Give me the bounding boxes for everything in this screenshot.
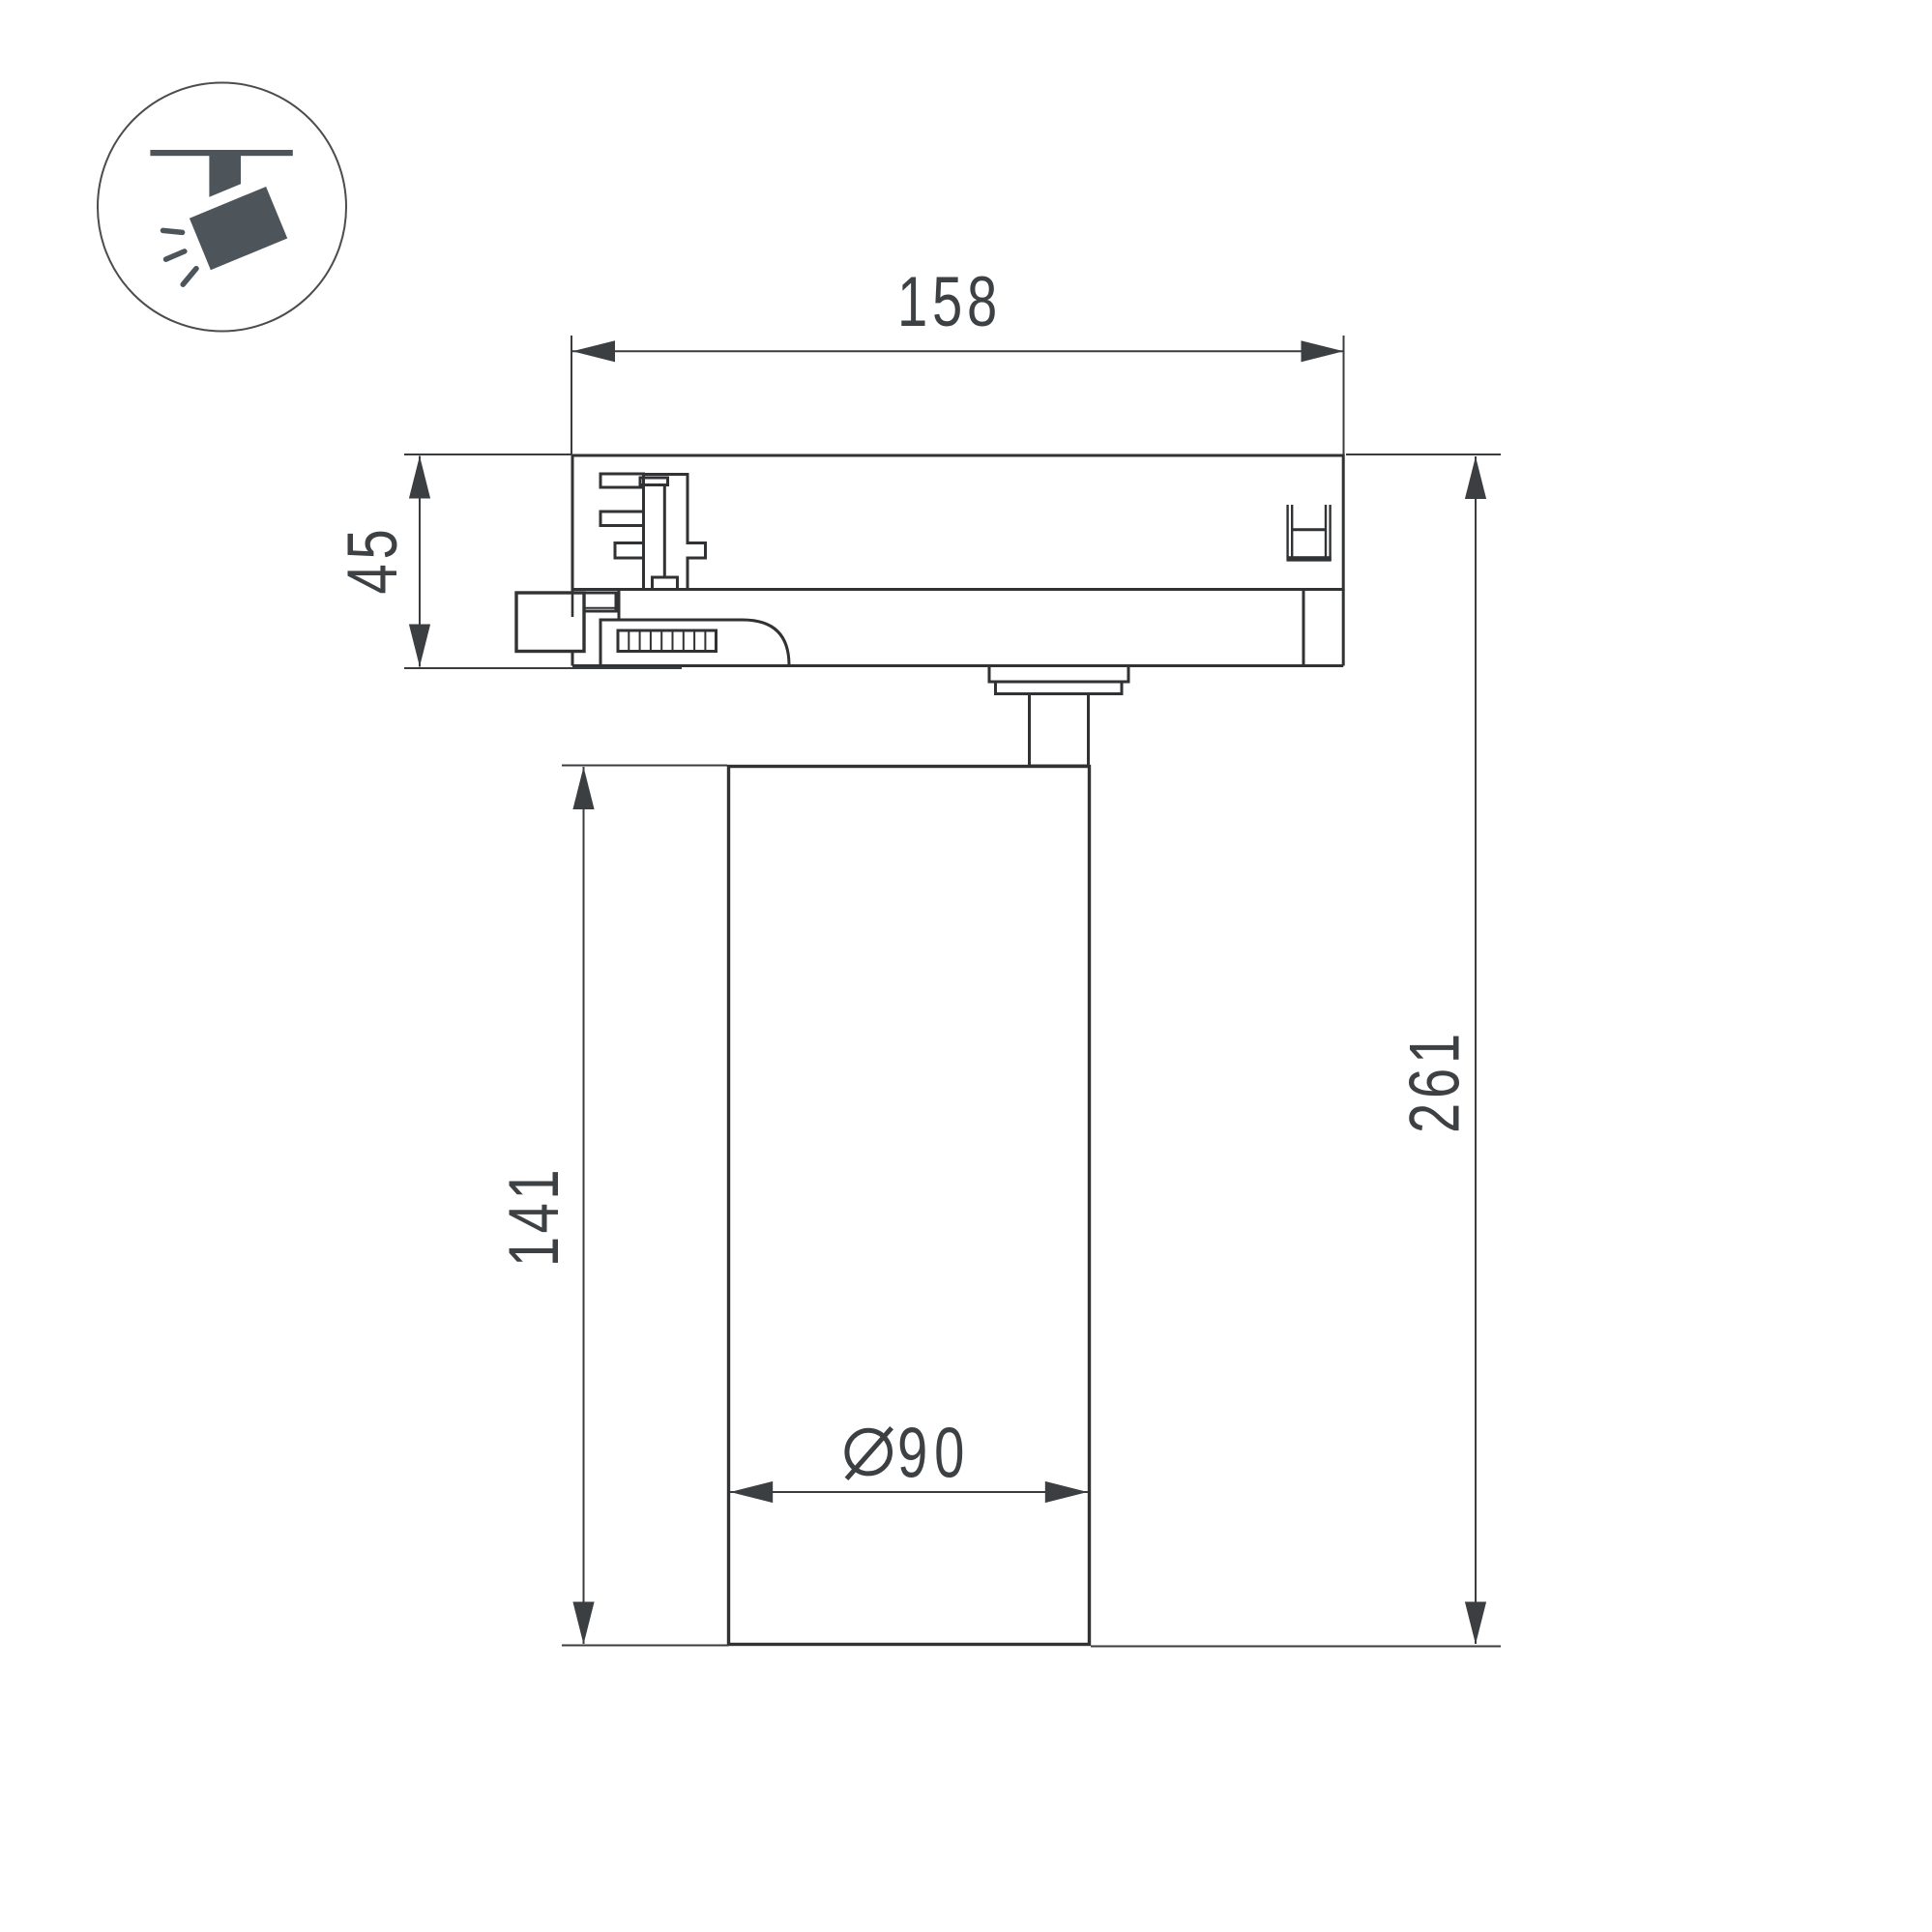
svg-text:90: 90 xyxy=(897,1413,971,1492)
svg-text:158: 158 xyxy=(897,262,1002,341)
svg-text:261: 261 xyxy=(1394,1029,1474,1133)
svg-text:141: 141 xyxy=(494,1166,573,1267)
svg-text:45: 45 xyxy=(333,524,412,594)
